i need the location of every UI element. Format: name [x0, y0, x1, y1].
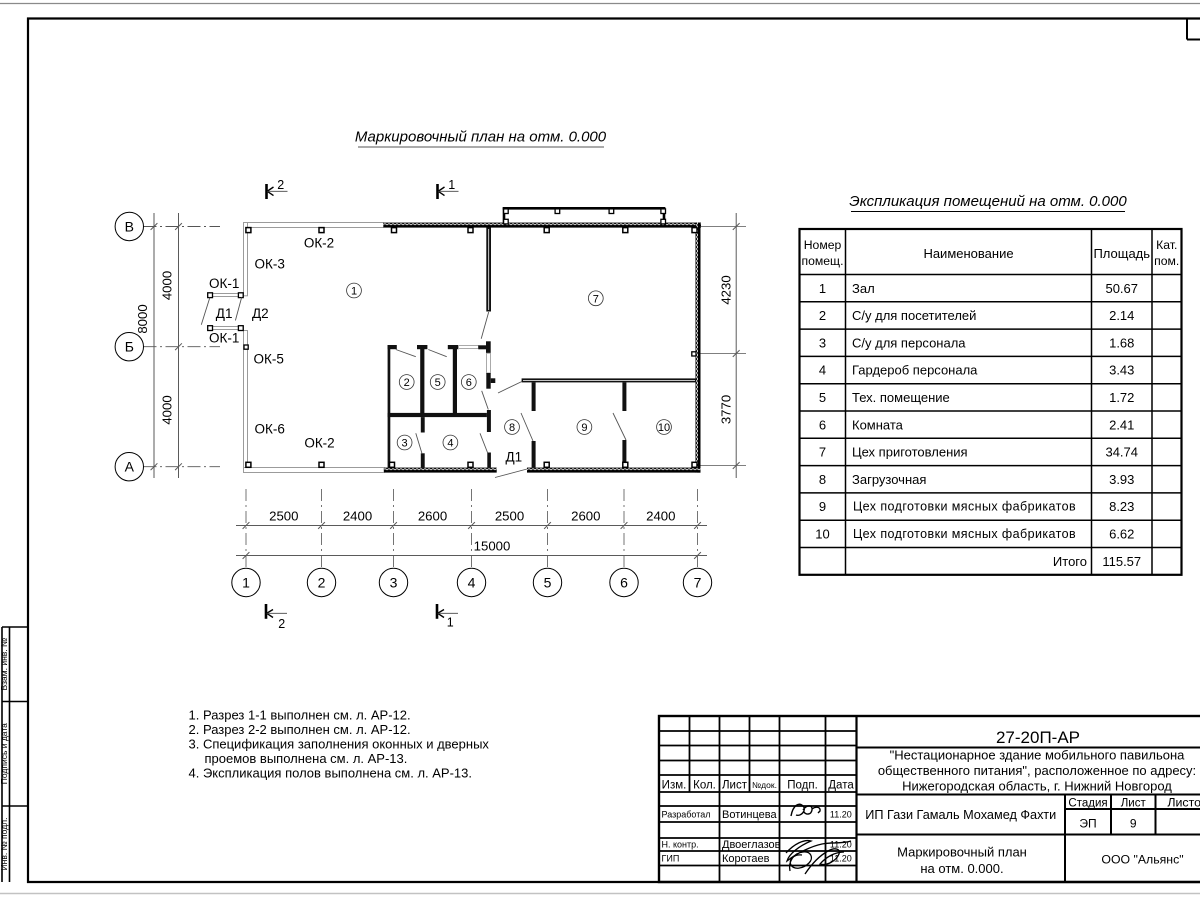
svg-text:5: 5 [544, 575, 552, 591]
svg-text:2400: 2400 [343, 509, 372, 524]
svg-text:Гардероб персонала: Гардероб персонала [852, 363, 978, 378]
svg-text:1: 1 [448, 178, 455, 192]
svg-text:2500: 2500 [495, 509, 524, 524]
svg-text:10: 10 [658, 422, 670, 434]
svg-text:Загрузочная: Загрузочная [852, 472, 926, 487]
svg-text:1.72: 1.72 [1109, 390, 1134, 405]
svg-text:С/у для персонала: С/у для персонала [852, 335, 966, 350]
svg-text:Лист: Лист [722, 780, 748, 792]
svg-text:Лист: Лист [1121, 798, 1147, 810]
svg-text:6: 6 [819, 417, 826, 432]
svg-text:Цех подготовки мясных фабрикат: Цех подготовки мясных фабрикатов [853, 527, 1076, 541]
svg-text:6: 6 [466, 377, 472, 389]
svg-text:ИП Гази Гамаль Мохамед Фахти: ИП Гази Гамаль Мохамед Фахти [865, 808, 1056, 822]
svg-text:Итого: Итого [1053, 554, 1087, 569]
svg-text:Д2: Д2 [252, 306, 269, 321]
svg-text:6.62: 6.62 [1109, 527, 1134, 542]
svg-text:3: 3 [402, 438, 408, 450]
svg-text:115.57: 115.57 [1102, 554, 1141, 569]
svg-text:Вотинцева: Вотинцева [722, 809, 777, 821]
svg-text:9: 9 [581, 422, 587, 434]
svg-text:Нижегородская область, г. Нижн: Нижегородская область, г. Нижний Новгоро… [902, 779, 1172, 794]
svg-text:4000: 4000 [160, 395, 175, 424]
svg-text:пом.: пом. [1154, 254, 1179, 268]
svg-text:ОК-1: ОК-1 [209, 331, 239, 346]
svg-text:на отм. 0.000.: на отм. 0.000. [920, 861, 1003, 876]
svg-text:Взам. инв. №: Взам. инв. № [0, 638, 9, 691]
svg-text:9: 9 [819, 499, 826, 514]
svg-text:2: 2 [819, 308, 826, 323]
svg-text:Зал: Зал [852, 281, 875, 296]
svg-text:2: 2 [277, 178, 284, 192]
svg-text:7: 7 [593, 293, 599, 305]
svg-text:Кол.: Кол. [693, 780, 716, 792]
svg-text:Подп.: Подп. [787, 780, 818, 792]
svg-text:50.67: 50.67 [1105, 281, 1138, 296]
svg-text:Коротаев: Коротаев [722, 853, 770, 865]
svg-text:2600: 2600 [418, 509, 447, 524]
svg-text:1: 1 [351, 286, 357, 298]
svg-text:34.74: 34.74 [1105, 445, 1138, 460]
svg-text:ГИП: ГИП [662, 854, 680, 864]
svg-text:Тех. помещение: Тех. помещение [852, 390, 950, 405]
svg-text:5: 5 [435, 377, 441, 389]
svg-text:7: 7 [694, 575, 702, 591]
svg-text:проемов выполнена см. л. АР-13: проемов выполнена см. л. АР-13. [205, 751, 408, 766]
svg-text:"Нестационарное здание мобильн: "Нестационарное здание мобильного павиль… [890, 748, 1186, 763]
svg-text:А: А [125, 459, 135, 475]
svg-text:Подпись и дата: Подпись и дата [0, 723, 9, 784]
svg-text:2. Разрез 2-2 выполнен см. л.: 2. Разрез 2-2 выполнен см. л. АР-12. [189, 722, 411, 737]
svg-text:4: 4 [819, 363, 826, 378]
svg-text:3.43: 3.43 [1109, 363, 1134, 378]
svg-text:2: 2 [278, 617, 285, 631]
svg-text:8000: 8000 [135, 304, 150, 333]
svg-text:помещ.: помещ. [802, 254, 844, 268]
svg-text:8: 8 [819, 472, 826, 487]
svg-text:Инв. № подл.: Инв. № подл. [0, 818, 9, 871]
svg-text:Изм.: Изм. [662, 780, 687, 792]
svg-text:№док.: №док. [752, 780, 777, 790]
svg-text:4. Экспликация полов выполнена: 4. Экспликация полов выполнена см. л. АР… [189, 766, 473, 781]
svg-text:2: 2 [318, 575, 326, 591]
svg-text:3770: 3770 [719, 395, 734, 424]
svg-text:ЭП: ЭП [1079, 817, 1096, 831]
svg-text:2500: 2500 [269, 509, 298, 524]
svg-text:4: 4 [468, 575, 476, 591]
svg-text:Цех подготовки мясных фабрикат: Цех подготовки мясных фабрикатов [853, 500, 1076, 514]
svg-text:Маркировочный план на отм. 0.0: Маркировочный план на отм. 0.000 [355, 129, 607, 146]
svg-text:3.93: 3.93 [1109, 472, 1134, 487]
svg-text:ОК-1: ОК-1 [209, 276, 239, 291]
svg-text:Площадь: Площадь [1093, 246, 1150, 261]
svg-text:3: 3 [819, 335, 826, 350]
svg-text:С/у для посетителей: С/у для посетителей [852, 308, 976, 323]
svg-text:1: 1 [242, 575, 250, 591]
svg-text:ООО "Альянс": ООО "Альянс" [1101, 853, 1183, 867]
svg-text:2400: 2400 [646, 509, 675, 524]
svg-text:Комната: Комната [852, 417, 904, 432]
svg-text:11.20: 11.20 [830, 854, 852, 864]
svg-text:27-20П-АР: 27-20П-АР [996, 728, 1080, 747]
svg-text:4000: 4000 [160, 271, 175, 300]
svg-text:7: 7 [819, 445, 826, 460]
svg-text:3. Спецификация заполнения око: 3. Спецификация заполнения оконных и две… [189, 737, 490, 752]
svg-text:1: 1 [447, 615, 454, 629]
svg-text:ОК-6: ОК-6 [255, 422, 285, 437]
svg-text:Кат.: Кат. [1156, 238, 1177, 252]
svg-text:6: 6 [620, 575, 628, 591]
svg-text:2.41: 2.41 [1109, 417, 1134, 432]
svg-text:Дата: Дата [828, 780, 854, 792]
svg-text:Экспликация помещений на отм.: Экспликация помещений на отм. 0.000 [849, 193, 1127, 210]
svg-text:ОК-2: ОК-2 [304, 436, 334, 451]
svg-text:2.14: 2.14 [1109, 308, 1134, 323]
svg-text:8: 8 [509, 422, 515, 434]
svg-text:Н. контр.: Н. контр. [662, 840, 699, 850]
svg-text:Б: Б [125, 339, 134, 355]
svg-text:ОК-2: ОК-2 [304, 236, 334, 251]
svg-text:1.68: 1.68 [1109, 335, 1134, 350]
svg-text:В: В [125, 219, 134, 235]
svg-text:15000: 15000 [474, 539, 511, 554]
svg-text:общественного питания", распол: общественного питания", расположенное по… [878, 763, 1196, 778]
svg-text:ОК-5: ОК-5 [254, 352, 284, 367]
svg-text:11.20: 11.20 [830, 840, 852, 850]
svg-text:Наименование: Наименование [923, 246, 1013, 261]
svg-text:1: 1 [819, 281, 826, 296]
svg-text:Двоеглазов: Двоеглазов [722, 839, 781, 851]
svg-text:ОК-3: ОК-3 [255, 257, 285, 272]
svg-text:Д1: Д1 [216, 306, 233, 321]
svg-text:1. Разрез 1-1 выполнен см. л.: 1. Разрез 1-1 выполнен см. л. АР-12. [189, 708, 411, 723]
svg-text:4: 4 [447, 438, 453, 450]
svg-text:10: 10 [815, 527, 829, 542]
svg-text:9: 9 [1130, 817, 1137, 831]
svg-text:8.23: 8.23 [1109, 499, 1134, 514]
svg-text:3: 3 [390, 575, 398, 591]
svg-text:4230: 4230 [719, 275, 734, 304]
svg-text:Листов: Листов [1167, 796, 1200, 810]
svg-text:Д1: Д1 [506, 450, 523, 465]
svg-text:5: 5 [819, 390, 826, 405]
svg-text:Цех приготовления: Цех приготовления [852, 445, 968, 460]
svg-text:Номер: Номер [804, 238, 842, 252]
svg-text:Стадия: Стадия [1068, 798, 1107, 810]
svg-text:2600: 2600 [571, 509, 600, 524]
svg-text:2: 2 [404, 377, 410, 389]
svg-text:11.20: 11.20 [830, 810, 852, 820]
svg-text:Разработал: Разработал [662, 810, 711, 820]
svg-text:Маркировочный план: Маркировочный план [897, 845, 1027, 860]
